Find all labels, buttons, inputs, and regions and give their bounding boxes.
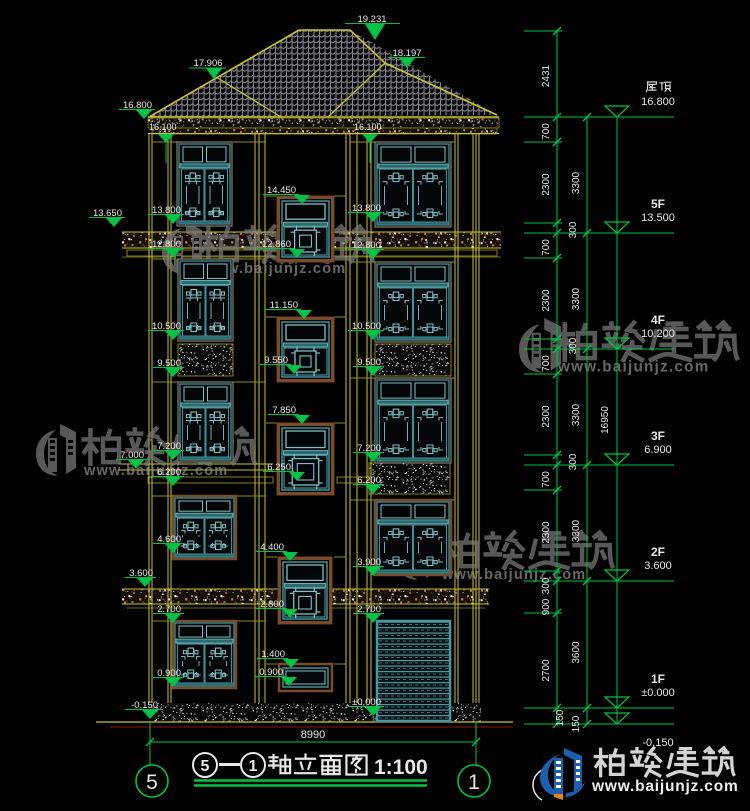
- svg-text:1F: 1F: [651, 672, 665, 686]
- svg-text:17.906: 17.906: [193, 58, 222, 69]
- svg-text:5: 5: [201, 758, 210, 775]
- svg-text:8990: 8990: [301, 729, 325, 741]
- svg-text:2300: 2300: [541, 405, 552, 428]
- svg-text:300: 300: [568, 337, 579, 354]
- svg-text:3300: 3300: [571, 287, 582, 310]
- svg-text:13.500: 13.500: [641, 212, 675, 224]
- svg-text:±0.000: ±0.000: [641, 687, 675, 699]
- svg-text:300: 300: [568, 453, 579, 470]
- svg-text:3600: 3600: [571, 641, 582, 664]
- svg-text:3F: 3F: [651, 429, 665, 443]
- svg-text:700: 700: [541, 123, 552, 140]
- svg-text:1: 1: [468, 771, 480, 794]
- svg-text:5: 5: [146, 771, 158, 794]
- svg-text:www.baijunjz.com: www.baijunjz.com: [557, 359, 710, 376]
- svg-text:2300: 2300: [541, 289, 552, 312]
- svg-text:300: 300: [541, 577, 552, 594]
- svg-text:700: 700: [541, 239, 552, 256]
- svg-text:150: 150: [555, 709, 566, 726]
- svg-text:16.800: 16.800: [641, 96, 675, 108]
- svg-text:10.200: 10.200: [641, 328, 675, 340]
- svg-text:3300: 3300: [571, 403, 582, 426]
- svg-text:16.100: 16.100: [149, 122, 177, 132]
- svg-text:150: 150: [571, 715, 582, 732]
- svg-text:5F: 5F: [651, 197, 665, 211]
- svg-text:900: 900: [541, 598, 552, 615]
- svg-text:1:100: 1:100: [374, 756, 428, 779]
- svg-text:6.900: 6.900: [644, 444, 672, 456]
- svg-text:16.100: 16.100: [354, 122, 382, 132]
- svg-text:2700: 2700: [541, 659, 552, 682]
- svg-text:3300: 3300: [571, 171, 582, 194]
- svg-text:700: 700: [541, 355, 552, 372]
- svg-text:2300: 2300: [541, 521, 552, 544]
- svg-text:4F: 4F: [651, 313, 665, 327]
- svg-text:2300: 2300: [541, 173, 552, 196]
- svg-text:www.baijunjz.com: www.baijunjz.com: [591, 778, 739, 795]
- svg-text:2F: 2F: [651, 545, 665, 559]
- svg-text:1: 1: [249, 758, 258, 775]
- svg-text:-0.150: -0.150: [642, 737, 673, 749]
- svg-text:300: 300: [568, 221, 579, 238]
- svg-text:16950: 16950: [600, 406, 611, 434]
- svg-text:700: 700: [541, 471, 552, 488]
- svg-text:3.600: 3.600: [644, 560, 672, 572]
- svg-text:2431: 2431: [541, 64, 552, 87]
- svg-text:3300: 3300: [571, 519, 582, 542]
